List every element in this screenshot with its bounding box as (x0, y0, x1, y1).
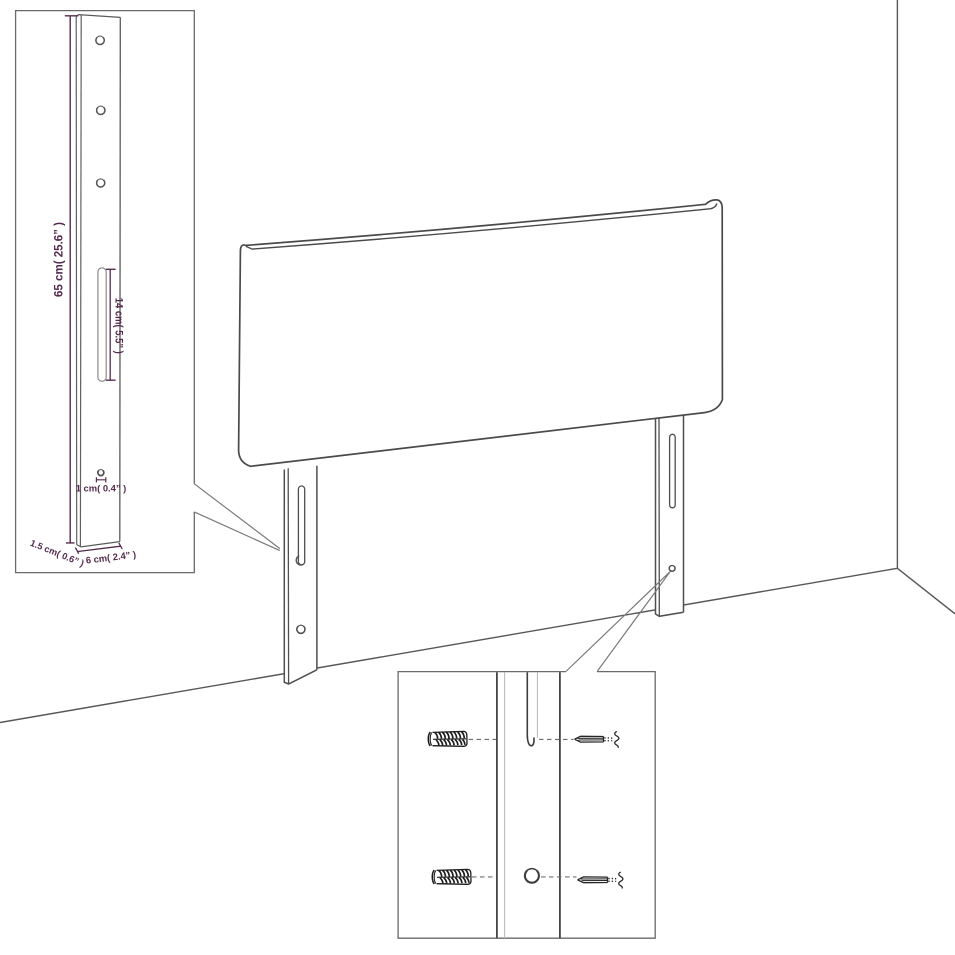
svg-text:14 cm( 5.5” ): 14 cm( 5.5” ) (112, 298, 124, 354)
svg-text:1 cm( 0.4” ): 1 cm( 0.4” ) (76, 483, 127, 494)
svg-text:65 cm( 25.6” ): 65 cm( 25.6” ) (51, 222, 65, 297)
